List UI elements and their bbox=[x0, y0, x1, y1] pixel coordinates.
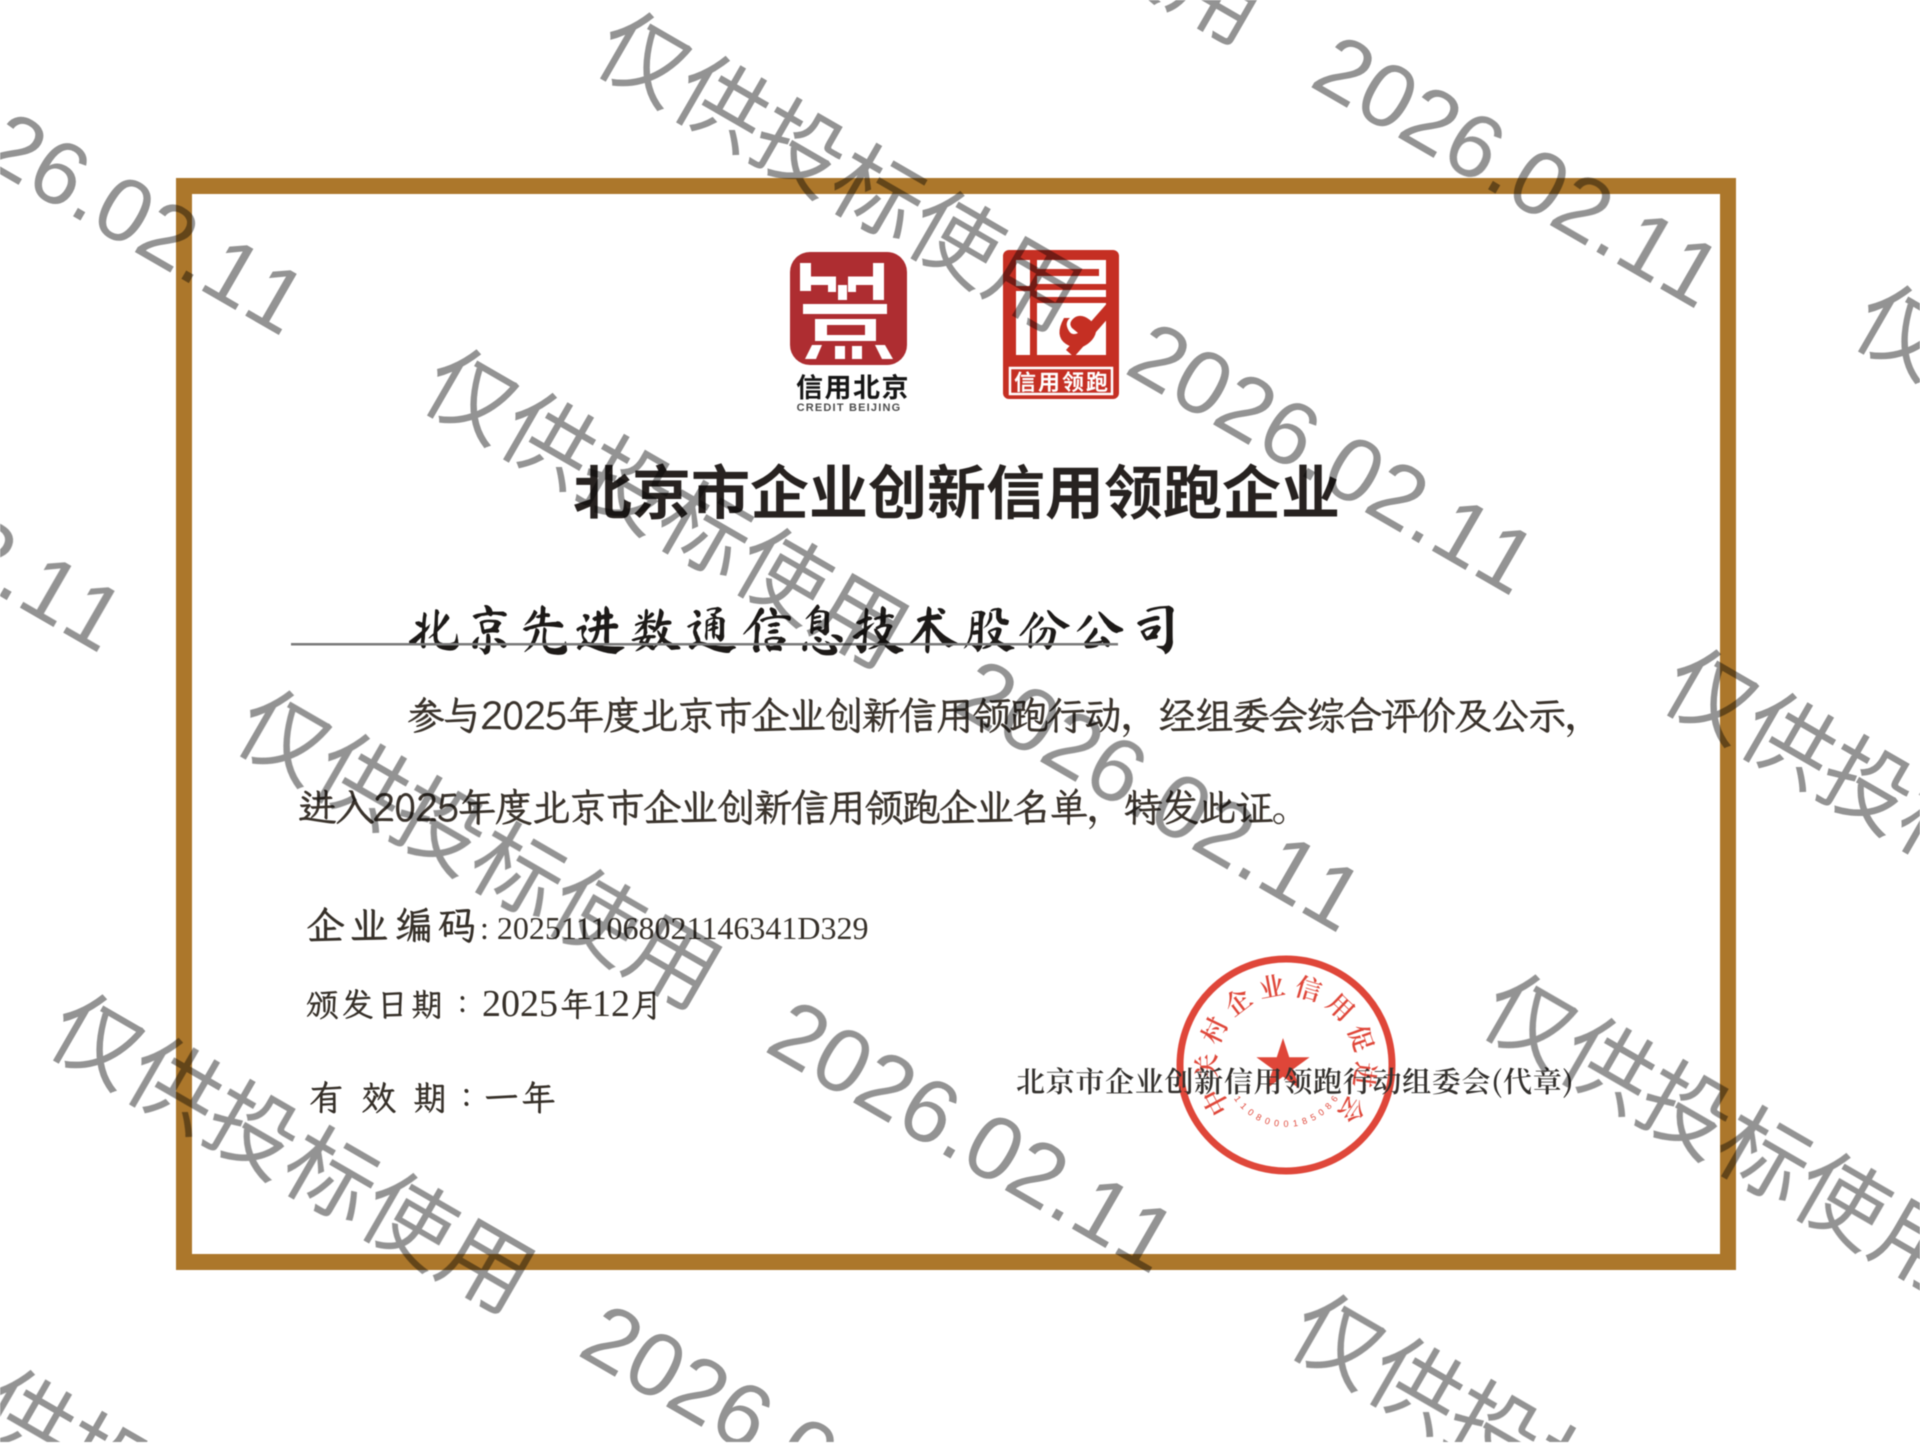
svg-text:5: 5 bbox=[1309, 1112, 1318, 1123]
svg-text:1: 1 bbox=[1238, 1101, 1249, 1112]
svg-text:6: 6 bbox=[1329, 1094, 1340, 1104]
svg-text:0: 0 bbox=[1283, 1119, 1288, 1129]
svg-text:8: 8 bbox=[1301, 1116, 1309, 1127]
svg-text:12: 12 bbox=[592, 983, 630, 1025]
svg-text:8: 8 bbox=[1254, 1112, 1263, 1123]
svg-text:8: 8 bbox=[1323, 1101, 1334, 1112]
svg-text:CREDIT BEIJING: CREDIT BEIJING bbox=[797, 402, 902, 414]
svg-text:0: 0 bbox=[1316, 1107, 1326, 1118]
svg-text:0: 0 bbox=[1246, 1107, 1256, 1118]
svg-text:0: 0 bbox=[1263, 1116, 1271, 1127]
svg-text:1: 1 bbox=[1232, 1094, 1243, 1104]
svg-text:1: 1 bbox=[1292, 1118, 1299, 1129]
svg-text:0: 0 bbox=[1273, 1118, 1280, 1129]
svg-text:2025: 2025 bbox=[482, 983, 558, 1025]
